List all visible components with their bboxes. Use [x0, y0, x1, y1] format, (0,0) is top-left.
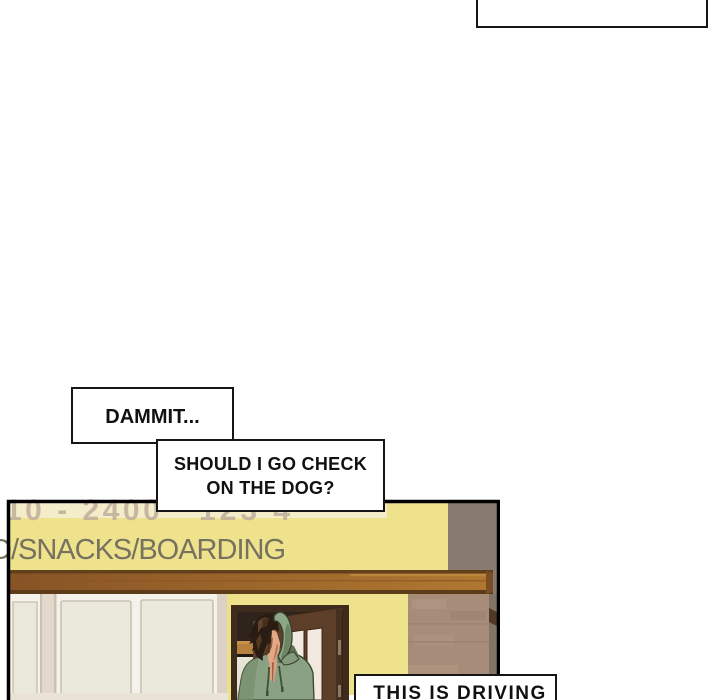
svg-text:D/SNACKS/BOARDING: D/SNACKS/BOARDING [0, 534, 285, 566]
